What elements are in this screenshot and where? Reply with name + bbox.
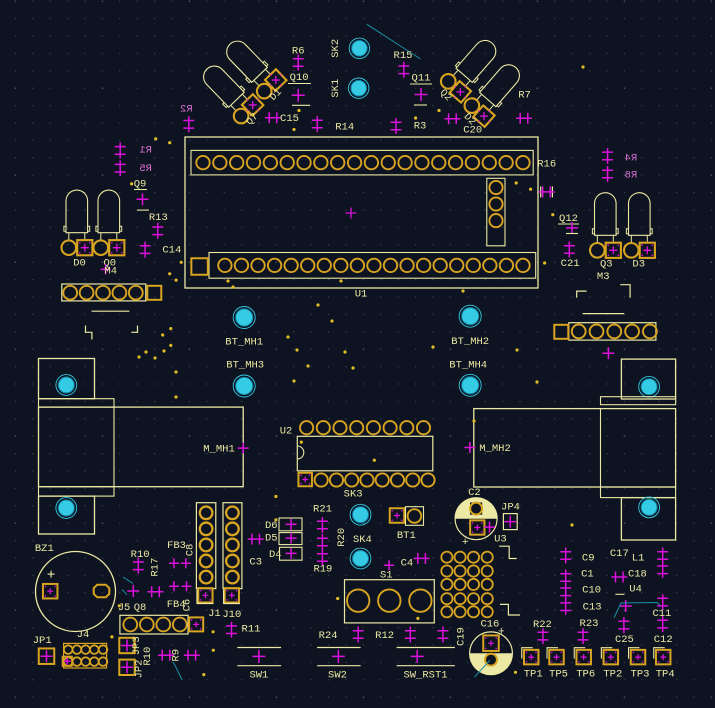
- svg-text:BZ1: BZ1: [35, 543, 54, 555]
- svg-text:R13: R13: [149, 212, 168, 224]
- svg-text:R9: R9: [171, 649, 183, 662]
- svg-text:SK2: SK2: [330, 39, 342, 58]
- svg-text:R11: R11: [242, 624, 261, 636]
- svg-text:C8: C8: [185, 544, 197, 557]
- svg-text:+: +: [462, 537, 469, 549]
- svg-text:C21: C21: [561, 258, 580, 270]
- svg-text:TP1: TP1: [524, 668, 543, 680]
- svg-text:TP6: TP6: [576, 668, 595, 680]
- svg-text:TP4: TP4: [656, 668, 675, 680]
- svg-text:FB4: FB4: [167, 599, 186, 611]
- svg-text:BT_MH3: BT_MH3: [226, 360, 264, 372]
- svg-text:C20: C20: [463, 125, 482, 137]
- svg-text:R20: R20: [336, 528, 348, 547]
- svg-text:R5: R5: [139, 163, 152, 175]
- svg-text:Q12: Q12: [559, 213, 578, 225]
- svg-text:R24: R24: [319, 630, 338, 642]
- svg-text:BT_MH1: BT_MH1: [225, 336, 263, 348]
- svg-text:BT1: BT1: [397, 530, 416, 542]
- svg-text:C17: C17: [610, 548, 629, 560]
- svg-text:FB3: FB3: [167, 540, 186, 552]
- svg-text:C25: C25: [615, 634, 634, 646]
- svg-text:BT_MH4: BT_MH4: [449, 359, 487, 371]
- svg-text:R3: R3: [414, 121, 427, 133]
- svg-text:SK3: SK3: [344, 488, 363, 500]
- svg-text:TP2: TP2: [603, 668, 622, 680]
- svg-text:U2: U2: [280, 426, 293, 438]
- svg-text:C1: C1: [581, 569, 594, 581]
- svg-text:Q9: Q9: [134, 178, 147, 190]
- svg-text:R15: R15: [394, 50, 413, 62]
- svg-text:D5: D5: [265, 533, 278, 545]
- svg-text:R23: R23: [580, 618, 599, 630]
- svg-text:R10: R10: [142, 647, 154, 666]
- svg-text:R16: R16: [537, 158, 556, 170]
- svg-text:M3: M3: [597, 271, 610, 283]
- svg-text:R7: R7: [518, 90, 531, 102]
- svg-text:D0: D0: [73, 257, 86, 269]
- svg-text:C13: C13: [583, 602, 602, 614]
- svg-text:C4: C4: [401, 557, 414, 569]
- svg-text:U1: U1: [355, 289, 368, 301]
- svg-text:M_MH2: M_MH2: [479, 443, 511, 455]
- svg-text:J5: J5: [118, 602, 131, 614]
- svg-text:R10: R10: [131, 549, 150, 561]
- svg-text:C3: C3: [249, 557, 262, 569]
- svg-text:C16: C16: [480, 619, 499, 631]
- svg-text:C19: C19: [456, 627, 468, 646]
- svg-text:SK4: SK4: [353, 534, 372, 546]
- svg-text:R21: R21: [313, 504, 332, 516]
- svg-text:BT_MH2: BT_MH2: [451, 336, 489, 348]
- svg-text:R19: R19: [313, 564, 332, 576]
- svg-text:R1: R1: [139, 145, 152, 157]
- svg-text:J1: J1: [208, 608, 221, 620]
- svg-text:R14: R14: [335, 122, 354, 134]
- svg-text:M4: M4: [104, 265, 117, 277]
- svg-text:M_MH1: M_MH1: [203, 444, 235, 456]
- svg-text:JP4: JP4: [501, 502, 520, 514]
- svg-text:SW2: SW2: [328, 669, 347, 681]
- svg-text:D6: D6: [265, 520, 278, 532]
- svg-text:SW1: SW1: [249, 669, 268, 681]
- svg-text:Q11: Q11: [412, 73, 431, 85]
- svg-text:SK1: SK1: [330, 79, 342, 98]
- svg-text:C18: C18: [628, 569, 647, 581]
- svg-text:C9: C9: [582, 552, 595, 564]
- svg-text:R12: R12: [375, 630, 394, 642]
- svg-text:J10: J10: [222, 609, 241, 621]
- svg-text:C15: C15: [280, 113, 299, 125]
- svg-text:C14: C14: [162, 245, 181, 257]
- svg-text:U3: U3: [494, 534, 507, 546]
- svg-text:JP1: JP1: [33, 635, 52, 647]
- svg-text:SW_RST1: SW_RST1: [403, 669, 447, 681]
- svg-text:R8: R8: [625, 170, 638, 182]
- svg-text:U4: U4: [629, 583, 642, 595]
- svg-text:R2: R2: [180, 104, 193, 116]
- svg-text:Q3: Q3: [600, 259, 613, 271]
- svg-text:Q10: Q10: [290, 72, 309, 84]
- svg-text:TP5: TP5: [549, 668, 568, 680]
- svg-text:J4: J4: [77, 629, 90, 641]
- svg-text:R17: R17: [150, 558, 162, 577]
- svg-text:C12: C12: [654, 634, 673, 646]
- svg-text:Q8: Q8: [134, 602, 147, 614]
- svg-text:L1: L1: [632, 552, 645, 564]
- svg-text:TP3: TP3: [631, 668, 650, 680]
- svg-text:C10: C10: [582, 585, 601, 597]
- svg-text:D3: D3: [632, 259, 645, 271]
- svg-text:C11: C11: [652, 608, 671, 620]
- svg-text:R4: R4: [625, 153, 638, 165]
